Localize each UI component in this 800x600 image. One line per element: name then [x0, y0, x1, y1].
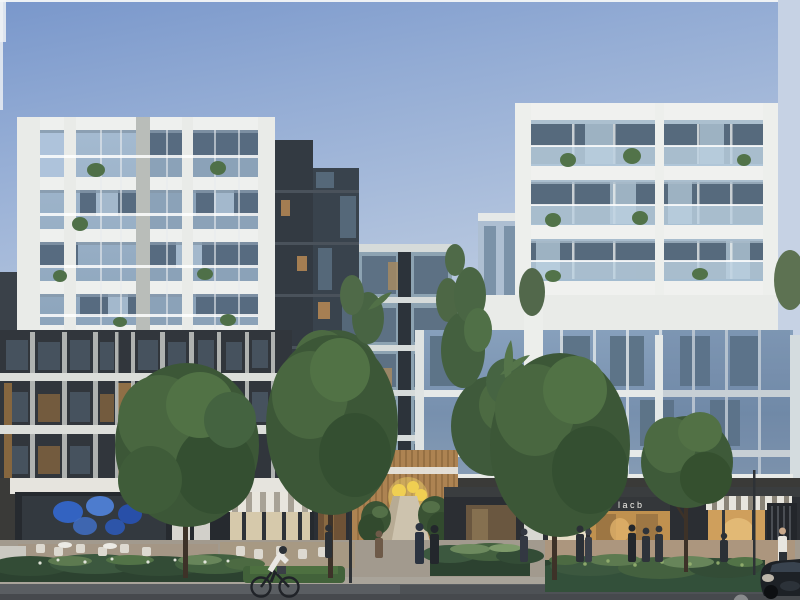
svg-text:l a c b: l a c b: [618, 500, 642, 510]
